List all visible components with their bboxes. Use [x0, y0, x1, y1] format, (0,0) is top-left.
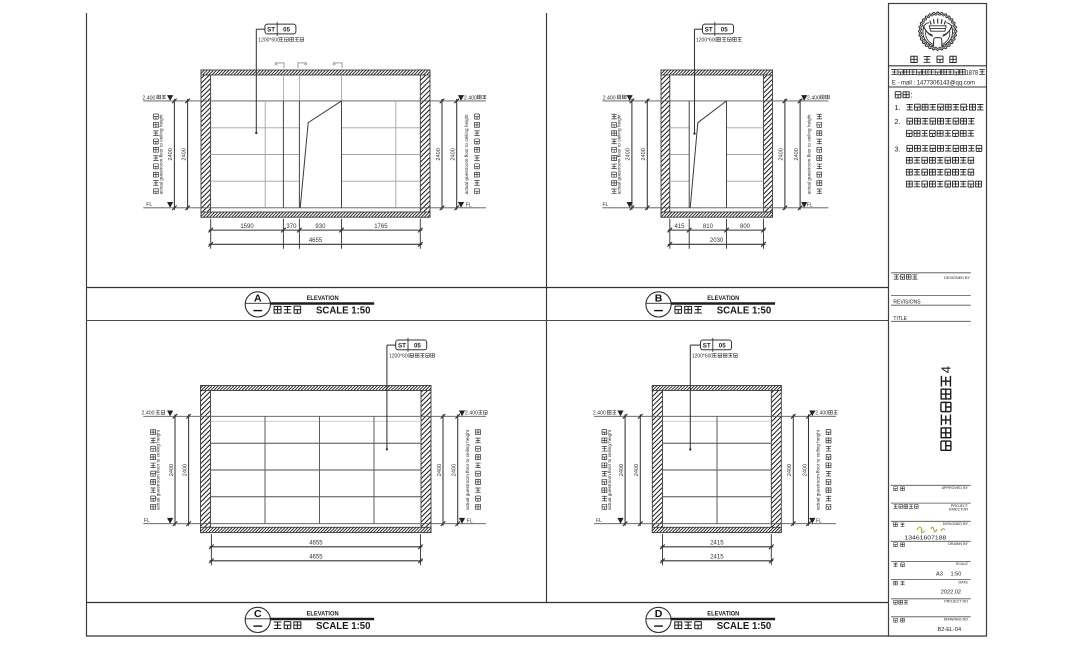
- svg-text:1765: 1765: [374, 224, 388, 230]
- svg-text:ST: ST: [267, 27, 275, 34]
- svg-text:2400: 2400: [802, 464, 808, 476]
- svg-text:2400: 2400: [787, 464, 793, 476]
- svg-text:D: D: [655, 608, 663, 620]
- svg-text:2400: 2400: [436, 148, 442, 160]
- svg-text:13461607188: 13461607188: [904, 536, 946, 542]
- svg-text:actual guestroom floor to ceil: actual guestroom floor to ceiling height: [465, 429, 470, 510]
- svg-text:2.400: 2.400: [603, 95, 616, 101]
- svg-text:2400: 2400: [626, 148, 632, 160]
- svg-text:2415: 2415: [710, 555, 724, 561]
- svg-text:1878: 1878: [966, 70, 979, 77]
- svg-text:PROJECT NO: PROJECT NO: [944, 600, 968, 604]
- svg-text:ELEVATION: ELEVATION: [707, 612, 739, 618]
- svg-text:FL: FL: [144, 518, 150, 524]
- svg-text:05: 05: [414, 342, 421, 349]
- svg-text:2030: 2030: [710, 238, 724, 244]
- svg-text:2.400: 2.400: [815, 411, 828, 417]
- svg-text:2400: 2400: [779, 148, 785, 160]
- svg-text:REVISIONS: REVISIONS: [893, 300, 921, 306]
- svg-text:actual guestroom floor to ceil: actual guestroom floor to ceiling height: [159, 114, 164, 195]
- svg-text:ELEVATION: ELEVATION: [307, 296, 339, 302]
- svg-text:4655: 4655: [309, 555, 323, 561]
- svg-text:2400: 2400: [182, 464, 188, 476]
- svg-text:05: 05: [283, 27, 290, 34]
- svg-text:ST: ST: [703, 342, 711, 349]
- svg-text:1200*600: 1200*600: [389, 354, 411, 360]
- svg-text:DESIGNED BY: DESIGNED BY: [944, 276, 970, 280]
- svg-text:1.: 1.: [894, 103, 900, 112]
- svg-text:FL: FL: [807, 203, 813, 209]
- svg-text:actual guestroom floor to ceil: actual guestroom floor to ceiling height: [156, 429, 161, 510]
- svg-text:2.400: 2.400: [807, 95, 820, 101]
- svg-text:05: 05: [721, 27, 728, 34]
- svg-text:ST: ST: [705, 27, 713, 34]
- svg-text:B2-EL-04: B2-EL-04: [938, 627, 962, 633]
- svg-text:ELEVATION: ELEVATION: [307, 612, 339, 618]
- svg-text:2415: 2415: [710, 541, 724, 547]
- svg-text:actual guestroom floor to ceil: actual guestroom floor to ceiling height: [617, 114, 622, 195]
- svg-text:3.: 3.: [894, 144, 900, 153]
- svg-text:1200*600: 1200*600: [692, 354, 714, 360]
- svg-text:2400: 2400: [619, 464, 625, 476]
- svg-text:actual guestroom floor to ceil: actual guestroom floor to ceiling height: [816, 429, 821, 510]
- svg-text:SCALE: SCALE: [956, 562, 969, 566]
- svg-text:1200*600: 1200*600: [258, 38, 280, 44]
- svg-text:05: 05: [719, 342, 726, 349]
- svg-text:2.400: 2.400: [142, 95, 155, 101]
- svg-text:DATE: DATE: [958, 580, 968, 584]
- svg-text:E - mail : 1477306143@qq.co: E - mail : 1477306143@qq.com: [892, 80, 975, 87]
- svg-text:2400: 2400: [634, 464, 640, 476]
- svg-text:1:50: 1:50: [951, 571, 962, 577]
- svg-text:DESIGNED BY: DESIGNED BY: [943, 522, 969, 526]
- svg-text:1200*600: 1200*600: [696, 38, 718, 44]
- svg-text:DRAWING NO: DRAWING NO: [944, 618, 968, 622]
- svg-text:C: C: [254, 608, 262, 620]
- svg-text:800: 800: [740, 224, 751, 230]
- svg-text:810: 810: [703, 224, 714, 230]
- svg-text:actual guestroom floor to ceil: actual guestroom floor to ceiling height: [464, 114, 469, 195]
- svg-text:FL: FL: [596, 518, 602, 524]
- svg-text:370: 370: [286, 224, 297, 230]
- svg-text:2.400: 2.400: [593, 411, 606, 417]
- svg-text:2.: 2.: [894, 117, 900, 126]
- svg-text:2400: 2400: [169, 464, 175, 476]
- svg-text:FL: FL: [603, 202, 609, 208]
- svg-text:2400: 2400: [437, 464, 443, 476]
- svg-text:B: B: [655, 292, 663, 304]
- svg-text:SCALE 1:50: SCALE 1:50: [717, 621, 772, 632]
- svg-text:4655: 4655: [309, 541, 323, 547]
- svg-text:2400: 2400: [641, 148, 647, 160]
- svg-text:FL: FL: [467, 518, 473, 524]
- svg-text:ST: ST: [398, 342, 406, 349]
- svg-text::: :: [911, 90, 913, 99]
- svg-text:2.400: 2.400: [142, 411, 155, 417]
- svg-text:FL: FL: [816, 518, 822, 524]
- svg-text:2400: 2400: [452, 464, 458, 476]
- svg-text:FL: FL: [466, 203, 472, 209]
- svg-text:actual guestroom floor to ceil: actual guestroom floor to ceiling height: [806, 114, 811, 195]
- svg-text:APPROVED BY: APPROVED BY: [942, 486, 969, 490]
- svg-text:2400: 2400: [794, 148, 800, 160]
- svg-text:2.400: 2.400: [465, 411, 478, 417]
- svg-text:FL: FL: [146, 202, 152, 208]
- svg-text:DRAWN BY: DRAWN BY: [948, 542, 968, 546]
- svg-text:415: 415: [674, 224, 685, 230]
- svg-text:SCALE 1:50: SCALE 1:50: [316, 305, 371, 316]
- svg-text:2400: 2400: [168, 148, 174, 160]
- svg-text:4655: 4655: [309, 238, 323, 244]
- svg-text:SCALE 1:50: SCALE 1:50: [717, 305, 772, 316]
- svg-text:A: A: [254, 292, 262, 304]
- svg-text:4: 4: [939, 366, 954, 373]
- svg-text:2.400: 2.400: [464, 95, 477, 101]
- svg-text:A3: A3: [936, 571, 943, 577]
- svg-text:actual guestroom floor to ceil: actual guestroom floor to ceiling height: [607, 429, 612, 510]
- svg-text:2400: 2400: [181, 148, 187, 160]
- svg-text::: :: [967, 103, 969, 112]
- svg-text:2022.02: 2022.02: [941, 589, 961, 595]
- svg-text:930: 930: [315, 224, 326, 230]
- svg-text:DIRECTOR: DIRECTOR: [949, 508, 969, 512]
- svg-text:SCALE 1:50: SCALE 1:50: [316, 621, 371, 632]
- svg-text:ELEVATION: ELEVATION: [707, 296, 739, 302]
- svg-text:1590: 1590: [240, 224, 254, 230]
- svg-text:2400: 2400: [451, 148, 457, 160]
